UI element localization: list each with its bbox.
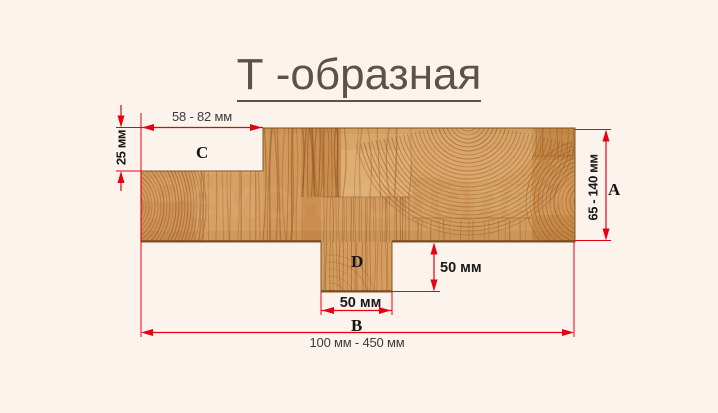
svg-text:РемонтСделай: РемонтСделай — [147, 166, 572, 231]
